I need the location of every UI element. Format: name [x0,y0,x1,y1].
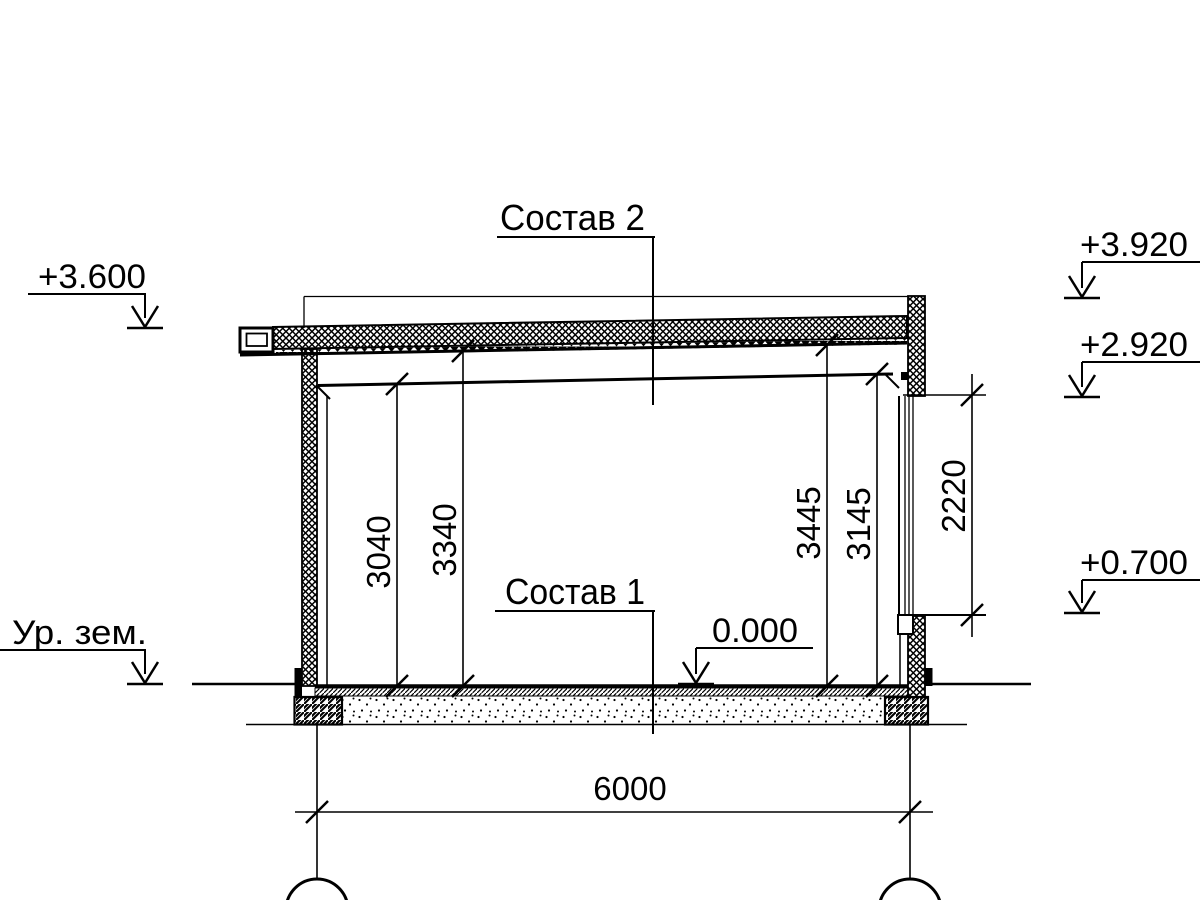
right-wall-upper [908,296,925,396]
elevation-0000-text: 0.000 [712,612,798,650]
elevation-mark-0700: +0.700 [1064,544,1200,613]
right-foundation [885,697,928,725]
elevation-0700-text: +0.700 [1080,544,1188,582]
elevation-mark-ground: Ур. зем. [0,614,163,684]
dimension-3145-text: 3145 [840,487,877,560]
floor-structure [246,686,967,725]
elevation-mark-3600: +3.600 [28,258,163,328]
ceiling-haunch-right [886,375,899,388]
elevation-2920-text: +2.920 [1080,326,1188,364]
dimension-3040: 3040 [360,373,408,697]
roof-slab [240,316,907,356]
elevation-mark-2920: +2.920 [1064,326,1200,397]
eaves-gutter-detail [240,328,273,352]
dimension-3040-text: 3040 [360,515,397,588]
dimension-6000: 6000 [295,770,933,823]
label-composition-1-text: Состав 1 [505,571,645,612]
window-head-anchor [901,372,908,380]
elevation-mark-3920: +3.920 [1064,226,1200,298]
dimension-3340-text: 3340 [426,503,463,576]
elevation-3600-text: +3.600 [38,258,146,296]
floor-underlay-stipple [342,696,885,724]
dimension-2220: 2220 [898,374,986,637]
section-drawing-page: 3040 3340 3445 3145 2220 6000 [0,0,1200,900]
elevation-mark-0000: 0.000 [678,612,813,684]
label-composition-2-text: Состав 2 [500,197,645,238]
dimension-3145: 3145 [840,363,888,697]
dimension-6000-text: 6000 [593,770,666,807]
dimension-3445-text: 3445 [790,486,827,559]
ceiling-haunch-left [317,386,330,399]
left-plinth-strip [295,668,303,697]
elevation-3920-text: +3.920 [1080,226,1188,264]
left-wall [302,349,317,686]
dimension-2220-text: 2220 [935,459,972,532]
dimension-3340: 3340 [426,340,474,697]
label-composition-2: Состав 2 [497,197,655,405]
left-foundation [295,697,343,725]
axis-bubble-right [879,879,941,900]
window-sill-board [898,615,913,634]
axis-bubble-left [286,879,348,900]
section-drawing-canvas: 3040 3340 3445 3145 2220 6000 [0,0,1200,900]
ground-level-text: Ур. зем. [12,614,147,652]
